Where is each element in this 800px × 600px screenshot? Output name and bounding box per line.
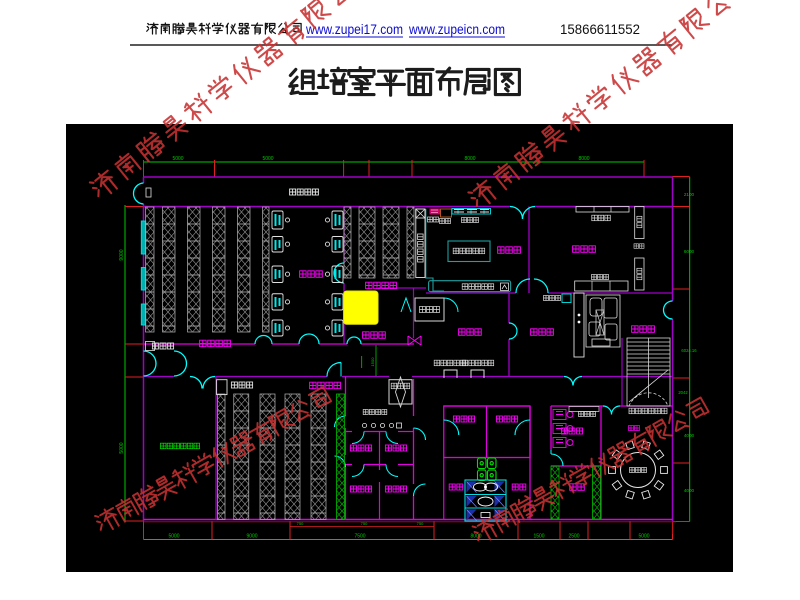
svg-text:5000: 5000 (168, 534, 179, 540)
svg-text:8000: 8000 (578, 156, 589, 162)
svg-text:5000: 5000 (172, 156, 183, 162)
svg-text:5000: 5000 (262, 156, 273, 162)
svg-text:8000: 8000 (464, 156, 475, 162)
svg-text:www.zupei17.com: www.zupei17.com (305, 22, 403, 37)
svg-text:15866611552: 15866611552 (560, 22, 640, 37)
svg-text:7500: 7500 (354, 534, 365, 540)
svg-text:2500: 2500 (568, 534, 579, 540)
svg-text:2100: 2100 (684, 192, 695, 197)
svg-text:1500: 1500 (533, 534, 544, 540)
svg-text:5000: 5000 (119, 442, 125, 453)
svg-text:9000: 9000 (119, 249, 125, 260)
svg-text:4000: 4000 (684, 488, 695, 493)
svg-text:9000: 9000 (246, 534, 257, 540)
svg-text:4000: 4000 (684, 433, 695, 438)
svg-text:2042: 2042 (678, 390, 688, 395)
svg-text:www.zupeicn.com: www.zupeicn.com (408, 22, 505, 37)
svg-text:6024.16: 6024.16 (681, 348, 697, 353)
svg-text:1500: 1500 (370, 357, 375, 367)
svg-text:6000: 6000 (684, 249, 695, 254)
svg-text:5000: 5000 (638, 534, 649, 540)
